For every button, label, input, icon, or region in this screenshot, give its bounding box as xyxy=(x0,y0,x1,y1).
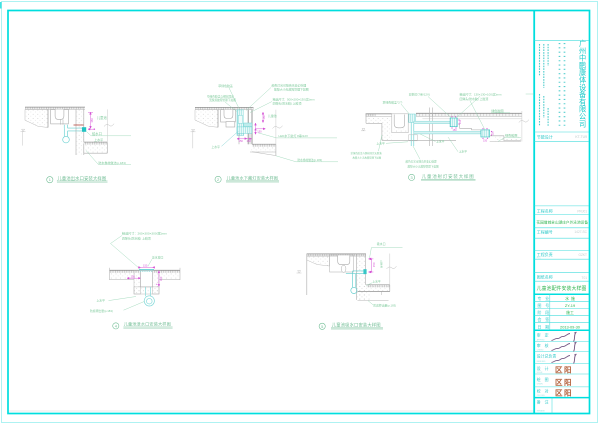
svg-text:颜色灯光可随音乐变幻处理: 颜色灯光可随音乐变幻处理 xyxy=(406,159,438,163)
svg-text:泛水坡口: 泛水坡口 xyxy=(152,254,164,259)
svg-text:150: 150 xyxy=(262,115,266,120)
svg-text:DRWN: DRWN xyxy=(537,383,543,385)
svg-text:PROOFD: PROOFD xyxy=(537,395,546,397)
svg-text:CHKED: CHKED xyxy=(537,350,544,352)
svg-text:上水平: 上水平 xyxy=(376,141,385,145)
svg-text:设计总负责: 设计总负责 xyxy=(537,354,557,359)
svg-text:四弹头(防水胶) 上胶顶: 四弹头(防水胶) 上胶顶 xyxy=(273,101,302,106)
svg-text:精选尺寸：500×200×130(宽)mm: 精选尺寸：500×200×130(宽)mm xyxy=(273,96,316,101)
svg-text:ZY-19: ZY-19 xyxy=(565,303,575,308)
svg-text:防水卷材做法(p.183): 防水卷材做法(p.183) xyxy=(298,158,323,162)
svg-text:上水平: 上水平 xyxy=(459,150,468,154)
svg-text:上水平: 上水平 xyxy=(436,140,445,144)
svg-text:150: 150 xyxy=(491,131,495,136)
svg-text:LED水下射灯 8串/12V: LED水下射灯 8串/12V xyxy=(279,133,309,138)
svg-text:阶 段: 阶 段 xyxy=(538,310,550,315)
svg-text:300: 300 xyxy=(159,276,163,281)
svg-text:审 定: 审 定 xyxy=(537,333,549,338)
svg-text:工程编号: 工程编号 xyxy=(537,228,553,234)
svg-text:1427-SC: 1427-SC xyxy=(574,230,587,234)
svg-text:P.I.C: P.I.C xyxy=(537,258,542,260)
svg-text:4: 4 xyxy=(115,323,118,328)
svg-text:区阳: 区阳 xyxy=(555,378,573,387)
svg-text:草绿色胶盖与钢丝固定无脱落: 草绿色胶盖与钢丝固定无脱落 xyxy=(351,151,383,155)
svg-text:工程负责: 工程负责 xyxy=(537,251,553,257)
svg-text:绿色胶圈: 绿色胶圈 xyxy=(505,133,517,138)
svg-text:150: 150 xyxy=(143,264,148,268)
svg-text:儿童池: 儿童池 xyxy=(380,259,383,268)
svg-text:150: 150 xyxy=(239,139,244,143)
svg-text:上水平: 上水平 xyxy=(97,298,106,302)
svg-text:儿童池射灯安装大样图: 儿童池射灯安装大样图 xyxy=(422,173,475,180)
svg-text:会 签: 会 签 xyxy=(538,317,550,322)
svg-text:150: 150 xyxy=(483,139,488,142)
svg-text:工程名称: 工程名称 xyxy=(537,208,553,214)
svg-text:花园增城全山湖庄户外泳池设备: 花园增城全山湖庄户外泳池设备 xyxy=(536,220,588,225)
svg-text:草绿色胶盖: 草绿色胶盖 xyxy=(218,83,233,88)
svg-text:150: 150 xyxy=(90,118,94,123)
svg-text:防水卷材做法(p.183): 防水卷材做法(p.183) xyxy=(98,160,126,165)
svg-text:PRJ01: PRJ01 xyxy=(577,209,587,213)
svg-text:2: 2 xyxy=(217,177,219,182)
svg-text:150: 150 xyxy=(131,274,136,278)
svg-text:DESIGND: DESIGND xyxy=(537,361,546,363)
svg-text:故障大小无故障管理下如图: 故障大小无故障管理下如图 xyxy=(353,156,382,160)
svg-text:审 核: 审 核 xyxy=(537,343,549,348)
svg-text:给水口: 给水口 xyxy=(92,131,102,136)
svg-text:节能设计: 节能设计 xyxy=(537,134,553,140)
svg-text:REMARK: REMARK xyxy=(537,410,546,413)
svg-text:儿童池水下藏灯安装大样图: 儿童池水下藏灯安装大样图 xyxy=(227,175,278,182)
svg-text:150: 150 xyxy=(372,262,376,267)
svg-text:T01: T01 xyxy=(582,276,588,280)
svg-text:防腐释出量(p.183): 防腐释出量(p.183) xyxy=(90,309,113,313)
svg-text:图 号: 图 号 xyxy=(538,303,550,308)
svg-text:四弹头(防水胶) 上胶顶: 四弹头(防水胶) 上胶顶 xyxy=(122,235,151,240)
svg-text:儿童池泄水口安装大样图: 儿童池泄水口安装大样图 xyxy=(124,321,171,328)
svg-text:无脱落故障管理下如图: 无脱落故障管理下如图 xyxy=(209,98,236,102)
svg-text:儿童池: 儿童池 xyxy=(97,115,108,120)
svg-text:GZKT: GZKT xyxy=(579,253,588,257)
svg-text:2013-09-30: 2013-09-30 xyxy=(560,325,581,330)
svg-text:150: 150 xyxy=(458,119,462,124)
svg-text:图纸名称: 图纸名称 xyxy=(537,273,553,279)
svg-text:故障大小无故障管理下如图: 故障大小无故障管理下如图 xyxy=(408,165,440,169)
svg-text:水 施: 水 施 xyxy=(565,296,575,301)
svg-text:区阳: 区阳 xyxy=(555,389,573,398)
svg-text:广州中鹏康体设备有限公司: 广州中鹏康体设备有限公司 xyxy=(579,39,586,128)
svg-text:精选尺寸：260×300×300(宽)mm: 精选尺寸：260×300×300(宽)mm xyxy=(122,231,167,236)
svg-text:儿童池配件安装大样图: 儿童池配件安装大样图 xyxy=(537,285,587,292)
svg-text:草绿色胶盖*2个: 草绿色胶盖*2个 xyxy=(383,99,403,104)
svg-text:四弹头(防水胶) 上胶顶: 四弹头(防水胶) 上胶顶 xyxy=(460,96,489,101)
svg-text:1: 1 xyxy=(49,177,51,182)
svg-text:儿童池: 儿童池 xyxy=(268,113,277,118)
svg-text:吸水口: 吸水口 xyxy=(377,241,386,246)
svg-text:专 业: 专 业 xyxy=(538,296,550,301)
svg-text:防腐释出量(p.183): 防腐释出量(p.183) xyxy=(373,304,396,308)
svg-text:区阳: 区阳 xyxy=(555,366,573,375)
svg-text:绘 图: 绘 图 xyxy=(537,377,549,382)
svg-text:双侧灯(7串/12V): 双侧灯(7串/12V) xyxy=(409,92,430,97)
svg-text:5: 5 xyxy=(321,324,323,329)
svg-text:APPRVD: APPRVD xyxy=(537,339,545,342)
svg-text:3: 3 xyxy=(411,175,413,180)
svg-text:设 计: 设 计 xyxy=(537,366,549,371)
svg-text:儿童池吸水口安装大样图: 儿童池吸水口安装大样图 xyxy=(332,322,381,329)
svg-text:150: 150 xyxy=(247,139,252,143)
svg-text:DSGN: DSGN xyxy=(537,372,543,374)
svg-text:施工: 施工 xyxy=(566,310,574,315)
svg-text:草绿色胶盖与钢丝固定: 草绿色胶盖与钢丝固定 xyxy=(207,94,234,98)
svg-text:日 期: 日 期 xyxy=(538,325,550,330)
svg-text:备 注: 备 注 xyxy=(537,399,549,404)
svg-text:上水平: 上水平 xyxy=(372,279,381,283)
svg-text:故障大小无故障管理下如图: 故障大小无故障管理下如图 xyxy=(274,86,309,91)
svg-text:KT-TU9: KT-TU9 xyxy=(575,135,587,139)
svg-text:上水平: 上水平 xyxy=(94,137,103,142)
svg-text:上水平: 上水平 xyxy=(212,145,221,149)
svg-text:绿色胶圈: 绿色胶圈 xyxy=(491,108,503,113)
svg-text:校 对: 校 对 xyxy=(537,389,549,394)
